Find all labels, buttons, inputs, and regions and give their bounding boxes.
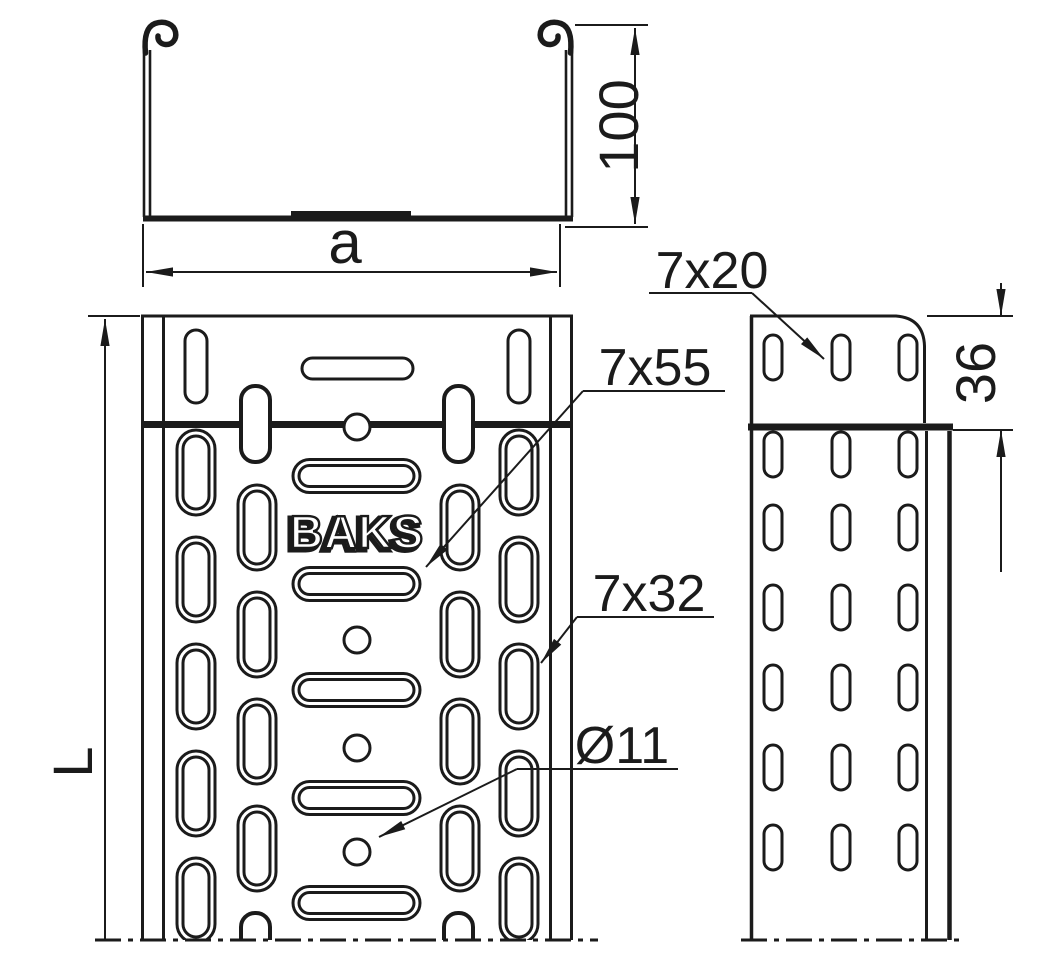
- slot-narrow: [241, 386, 270, 462]
- slot-7x20: [832, 665, 850, 710]
- slot-7x20: [832, 335, 850, 380]
- slot-7x20: [899, 825, 917, 870]
- slot-7x20: [764, 585, 782, 630]
- slot-narrow: [444, 386, 473, 462]
- baks-logo: BAKS BAKS: [287, 506, 424, 560]
- dimension-100-value: 100: [587, 79, 650, 172]
- slot-7x32: [238, 592, 276, 677]
- slot-narrow: [444, 913, 473, 977]
- label-7x20: 7x20: [656, 242, 769, 300]
- slot-7x32: [500, 430, 538, 515]
- technical-drawing-page: 100 a: [0, 0, 1039, 977]
- side-view: [741, 316, 966, 940]
- slot-7x20: [764, 335, 782, 380]
- label-diameter-11: Ø11: [575, 717, 669, 775]
- hole-d11: [344, 735, 370, 761]
- slot-7x55: [293, 460, 420, 493]
- slot-7x20: [832, 432, 850, 477]
- slot-7x55: [293, 674, 420, 707]
- slot-7x32: [441, 806, 479, 891]
- slot-7x20: [832, 505, 850, 550]
- band-slot-left: [185, 330, 207, 403]
- slot-7x32: [177, 644, 215, 729]
- slot-7x55: [293, 568, 420, 601]
- slot-7x32: [177, 537, 215, 622]
- slot-7x55: [293, 782, 420, 815]
- dimension-a-value: a: [328, 209, 362, 276]
- slot-7x20: [764, 665, 782, 710]
- side-band-slots: [764, 335, 917, 380]
- label-7x55: 7x55: [599, 339, 712, 397]
- slot-7x20: [764, 505, 782, 550]
- slot-7x32: [500, 751, 538, 836]
- svg-text:BAKS: BAKS: [290, 506, 424, 558]
- slot-7x20: [832, 825, 850, 870]
- slot-7x20: [899, 585, 917, 630]
- slot-7x20: [899, 432, 917, 477]
- slot-7x55: [293, 887, 420, 920]
- slot-7x20: [764, 825, 782, 870]
- dimension-100: 100: [565, 25, 650, 227]
- slot-7x20: [764, 432, 782, 477]
- cable-tray-drawing: 100 a: [0, 0, 1039, 977]
- left-hook-edge: [145, 22, 176, 53]
- slot-7x32: [238, 699, 276, 784]
- hole-d11: [344, 627, 370, 653]
- slot-7x32: [177, 751, 215, 836]
- slot-7x32: [177, 858, 215, 943]
- slot-7x32: [177, 430, 215, 515]
- band-slot-right: [508, 330, 530, 403]
- slot-7x32: [238, 806, 276, 891]
- label-7x32: 7x32: [593, 565, 706, 623]
- slot-7x32: [238, 485, 276, 570]
- slot-7x32: [500, 858, 538, 943]
- slot-7x32: [441, 699, 479, 784]
- callout-7x32: 7x32: [541, 565, 714, 663]
- perforation-pattern: [177, 386, 538, 977]
- right-hook-edge: [540, 22, 571, 53]
- slot-7x32: [500, 644, 538, 729]
- band-slot-center: [302, 358, 413, 379]
- dimension-L-value: L: [41, 746, 104, 777]
- hole-d11: [344, 839, 370, 865]
- slot-7x20: [899, 745, 917, 790]
- slot-narrow: [241, 913, 270, 977]
- plan-view: BAKS BAKS: [95, 316, 598, 977]
- hole-d11: [344, 414, 370, 440]
- cross-section-view: [143, 22, 573, 218]
- slot-7x20: [832, 585, 850, 630]
- slot-7x32: [500, 537, 538, 622]
- slot-7x20: [899, 335, 917, 380]
- slot-7x20: [899, 665, 917, 710]
- dimension-L: L: [41, 316, 140, 940]
- slot-7x20: [899, 505, 917, 550]
- slot-7x20: [832, 745, 850, 790]
- connector-band-slots: [185, 330, 530, 403]
- slot-7x20: [764, 745, 782, 790]
- dimension-36-value: 36: [944, 342, 1007, 404]
- slot-7x32: [441, 592, 479, 677]
- side-wall-slots: [764, 432, 917, 870]
